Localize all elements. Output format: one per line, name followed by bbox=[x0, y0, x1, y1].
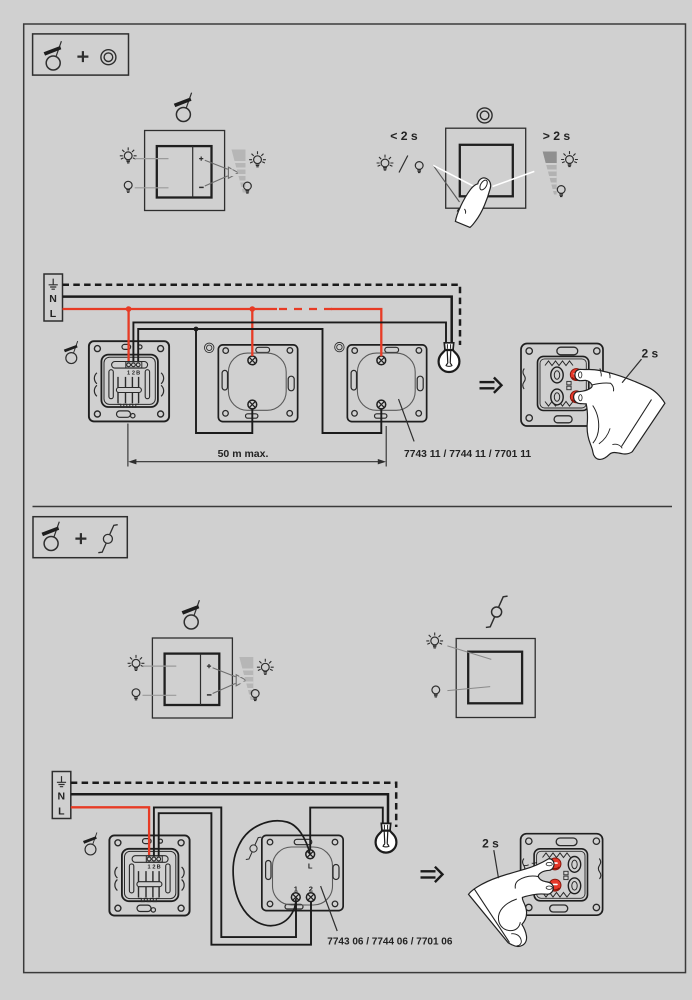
svg-text:1: 1 bbox=[294, 885, 298, 894]
svg-text:< 2 s: < 2 s bbox=[390, 129, 418, 143]
svg-text:L: L bbox=[308, 862, 313, 871]
svg-text:2: 2 bbox=[309, 885, 313, 894]
svg-text:2 s: 2 s bbox=[641, 347, 658, 361]
svg-text:7743 06 / 7744 06 / 7701 06: 7743 06 / 7744 06 / 7701 06 bbox=[327, 937, 453, 948]
svg-text:> 2 s: > 2 s bbox=[543, 129, 571, 143]
svg-text:2 s: 2 s bbox=[482, 837, 499, 851]
svg-text:50 m max.: 50 m max. bbox=[218, 448, 269, 460]
svg-text:7743 11 / 7744 11 / 7701 11: 7743 11 / 7744 11 / 7701 11 bbox=[404, 449, 531, 460]
